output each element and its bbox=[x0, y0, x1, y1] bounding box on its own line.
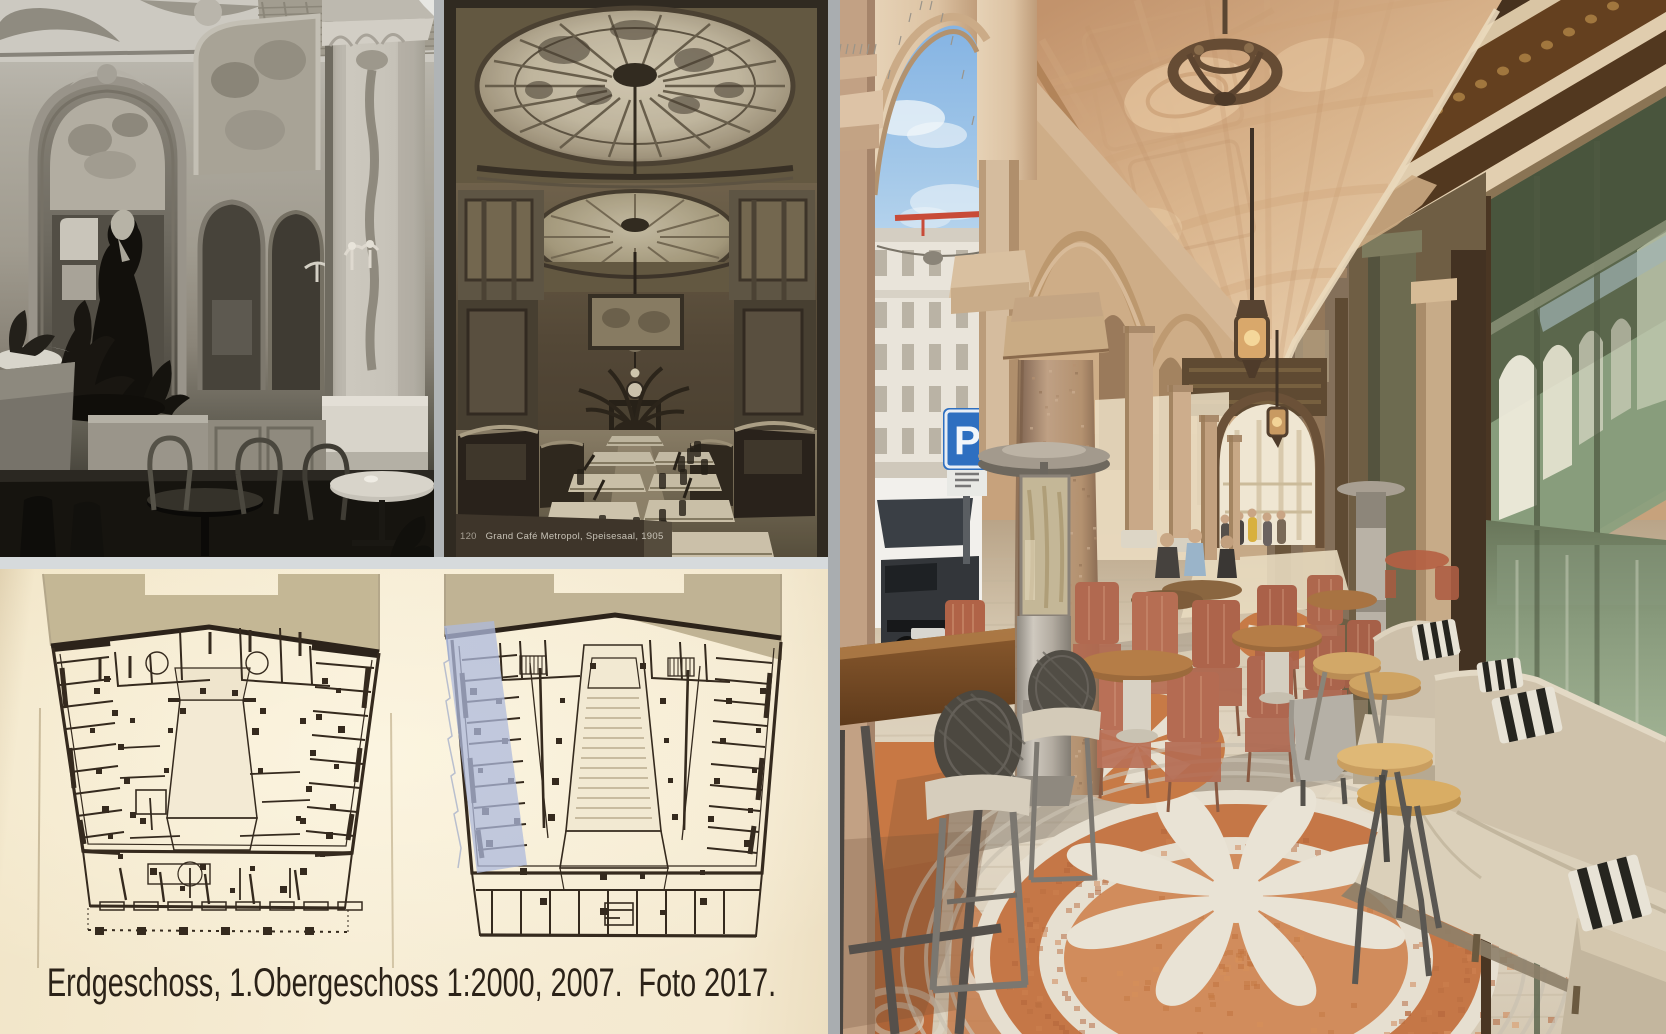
svg-text:P: P bbox=[954, 419, 981, 463]
